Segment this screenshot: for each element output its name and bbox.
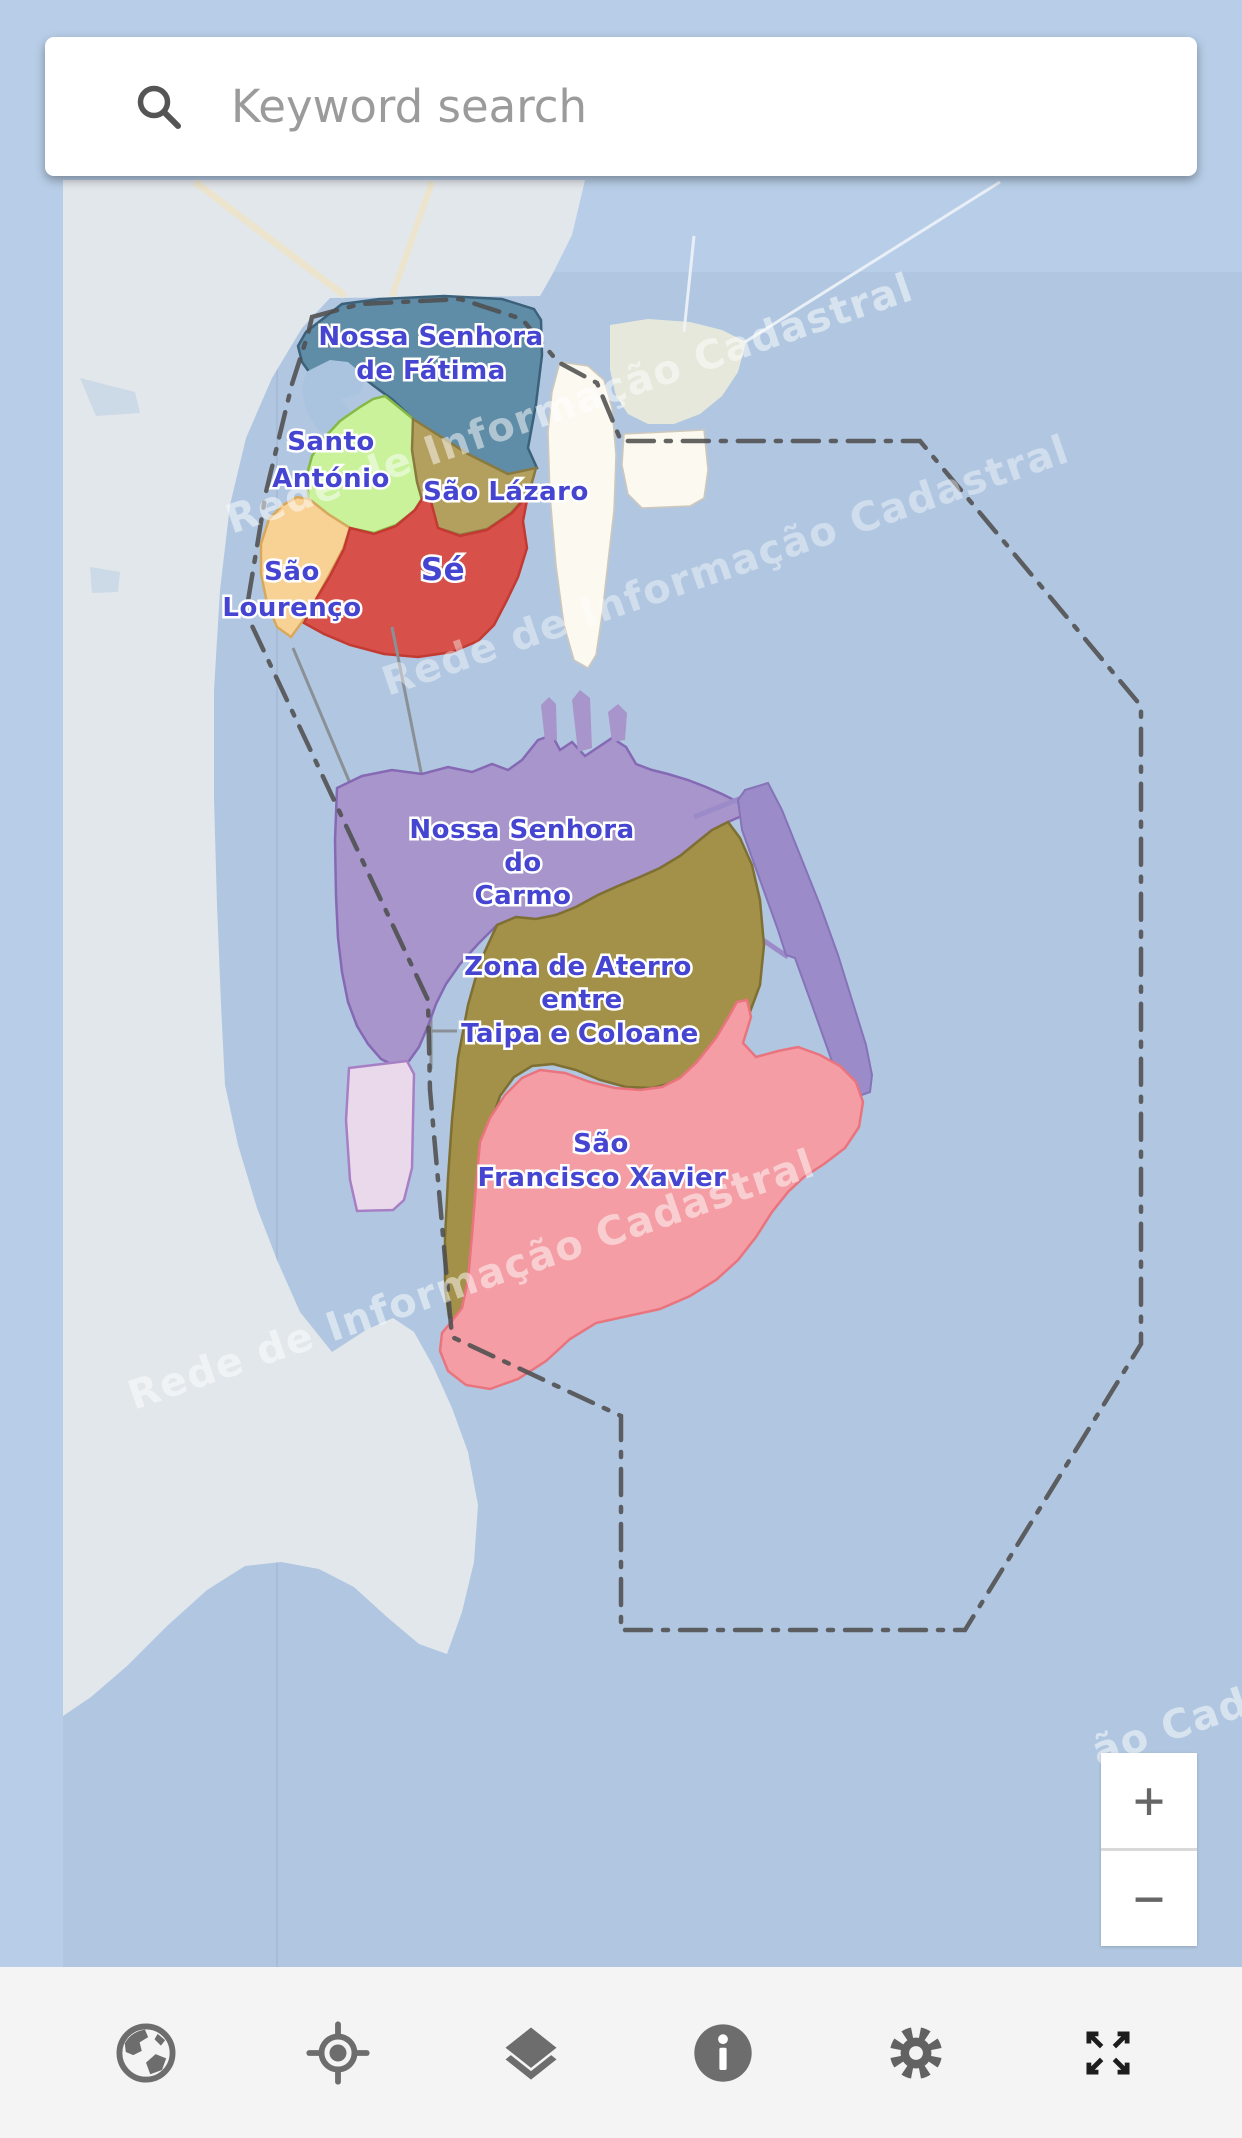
layers-icon: [497, 2019, 565, 2087]
layers-button[interactable]: [493, 2015, 569, 2091]
info-button[interactable]: [685, 2015, 761, 2091]
locate-icon: [304, 2019, 372, 2087]
zoom-control: + −: [1101, 1753, 1197, 1946]
globe-icon: [112, 2019, 180, 2087]
info-icon: [689, 2019, 757, 2087]
label-nossa-senhora-do-carmo: Nossa Senhora: [409, 815, 634, 845]
label-zona-de-aterro: Taipa e Coloane: [461, 1019, 699, 1049]
fullscreen-icon: [1074, 2019, 1142, 2087]
settings-gear-icon: [882, 2019, 950, 2087]
search-input[interactable]: [229, 79, 1167, 134]
label-zona-de-aterro: entre: [541, 985, 623, 1015]
label-santo-antonio: António: [272, 464, 390, 494]
zoom-in-button[interactable]: +: [1101, 1753, 1197, 1851]
label-santo-antonio: Santo: [287, 427, 375, 457]
settings-button[interactable]: [878, 2015, 954, 2091]
label-nossa-senhora-de-fatima: Nossa Senhora: [318, 322, 543, 352]
label-sao-francisco-xavier: Francisco Xavier: [477, 1163, 726, 1193]
search-bar: [45, 37, 1197, 176]
university-parcel: [346, 1061, 414, 1211]
map-canvas[interactable]: Rede de Informação Cadastral Rede de Inf…: [0, 0, 1242, 1967]
label-zona-de-aterro: Zona de Aterro: [464, 952, 692, 982]
zoom-out-button[interactable]: −: [1101, 1851, 1197, 1946]
label-sao-lazaro: São Lázaro: [423, 477, 589, 507]
search-icon: [133, 81, 185, 133]
label-nossa-senhora-do-carmo: do: [504, 848, 541, 878]
label-nossa-senhora-de-fatima: de Fátima: [356, 356, 506, 386]
label-sao-francisco-xavier: São: [573, 1129, 629, 1159]
label-nossa-senhora-do-carmo: Carmo: [475, 881, 572, 911]
label-se: Sé: [421, 552, 465, 588]
bottom-toolbar: [0, 1967, 1242, 2138]
locate-button[interactable]: [300, 2015, 376, 2091]
fullscreen-button[interactable]: [1070, 2015, 1146, 2091]
label-sao-lourenco: São: [264, 557, 320, 587]
globe-button[interactable]: [108, 2015, 184, 2091]
label-sao-lourenco: Lourenço: [222, 593, 361, 623]
